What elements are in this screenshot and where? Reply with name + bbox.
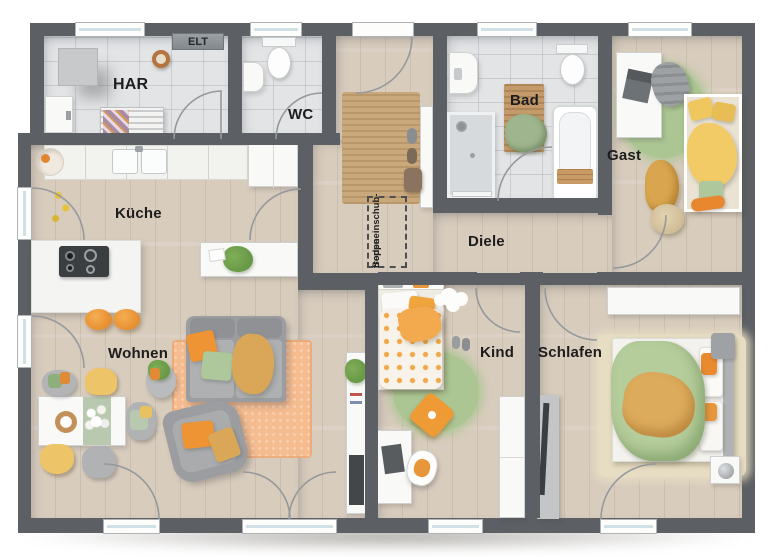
- window-icon: [428, 519, 483, 534]
- laptop-icon: [381, 444, 405, 475]
- attic-hatch: Bodeneinschub- treppe: [367, 196, 407, 268]
- bath-sink-icon: [449, 52, 478, 94]
- wall: [433, 36, 447, 213]
- pouf-icon: [650, 204, 684, 234]
- attic-hatch-label: Bodeneinschub- treppe: [372, 196, 406, 268]
- nightstand-icon: [710, 456, 740, 484]
- room-label-har: HAR: [113, 76, 148, 94]
- bar-stool-icon: [113, 309, 140, 330]
- wall: [228, 133, 340, 145]
- kitchen-island-icon: [31, 240, 141, 313]
- kitchen-sink-icon: [112, 149, 138, 174]
- schlafen-wardrobe-icon: [607, 287, 740, 315]
- bouquet-icon: [81, 403, 115, 437]
- chair-icon: [82, 446, 116, 478]
- cloud-decor-icon: [440, 288, 458, 306]
- toilet-icon: [262, 37, 296, 47]
- kind-bed-icon: [378, 276, 444, 390]
- bath-toilet-icon: [556, 44, 588, 54]
- bath-toilet-bowl-icon: [560, 54, 585, 85]
- elt-label: ELT: [188, 36, 208, 48]
- washing-machine-icon: [45, 96, 73, 133]
- bag-icon: [404, 168, 422, 192]
- plate-icon: [55, 411, 77, 433]
- wall: [597, 272, 742, 285]
- bathtub-icon: [552, 105, 598, 203]
- towel-icon: [505, 114, 547, 152]
- bar-stool-icon: [85, 309, 112, 330]
- wall: [298, 140, 313, 188]
- pillow-icon: [201, 351, 233, 382]
- towel-rail-icon: [452, 191, 492, 197]
- room-label-wc: WC: [288, 106, 313, 123]
- storage-box-icon: [58, 48, 98, 86]
- window-icon: [75, 22, 145, 37]
- fruit-bowl-icon: [36, 148, 64, 176]
- slippers-icon: [452, 336, 460, 349]
- cooktop-icon: [59, 246, 109, 277]
- elt-panel: ELT: [172, 33, 224, 50]
- tv-bench-icon: [346, 352, 366, 514]
- wall: [228, 36, 242, 133]
- tv-board-icon: [537, 395, 559, 519]
- window-icon: [17, 187, 32, 240]
- cable-coil-icon: [152, 50, 170, 68]
- toilet-bowl-icon: [267, 47, 291, 79]
- wall: [322, 36, 336, 140]
- wall: [525, 272, 540, 518]
- fridge-icon: [248, 141, 298, 187]
- tv-icon: [349, 455, 364, 505]
- drying-rack-icon: [100, 107, 164, 135]
- shower-icon: [447, 112, 495, 198]
- room-label-bad: Bad: [510, 92, 539, 109]
- gast-bed-icon: [684, 94, 742, 212]
- chair-icon: [85, 368, 117, 395]
- chair-icon: [126, 402, 156, 440]
- kitchen-sink-icon: [141, 149, 167, 174]
- wall: [378, 272, 477, 285]
- chair-icon: [40, 444, 74, 474]
- houseplant-icon: [223, 246, 253, 272]
- room-label-kueche: Küche: [115, 205, 162, 222]
- dining-table-icon: [38, 396, 126, 446]
- laptop-icon: [622, 69, 654, 104]
- faucet-icon: [135, 146, 143, 152]
- patio-door-icon: [600, 519, 657, 534]
- window-icon: [477, 22, 537, 37]
- room-label-kind: Kind: [480, 344, 514, 361]
- window-icon: [628, 22, 692, 37]
- room-diele-east: [433, 213, 612, 273]
- patio-double-door-icon: [242, 519, 337, 534]
- wall: [552, 198, 598, 213]
- sofa-icon: [186, 316, 286, 402]
- lamp-icon: [718, 463, 734, 479]
- kind-wardrobe-icon: [499, 396, 525, 518]
- sideboard-icon: [200, 242, 298, 277]
- room-label-gast: Gast: [607, 147, 641, 164]
- floor-plan: Bodeneinschub- treppe: [0, 0, 775, 557]
- room-label-schlafen: Schlafen: [538, 344, 602, 361]
- wall: [598, 36, 612, 215]
- wall: [30, 133, 182, 145]
- entrance-door-icon: [352, 22, 414, 37]
- houseplant-icon: [345, 359, 367, 383]
- tv-icon: [539, 403, 550, 495]
- room-label-diele: Diele: [468, 233, 505, 250]
- window-icon: [17, 315, 32, 368]
- window-icon: [250, 22, 302, 37]
- bath-caddy-icon: [557, 169, 593, 184]
- schlafen-bed-icon: [612, 338, 734, 462]
- patio-door-icon: [103, 519, 160, 534]
- chair-icon: [42, 370, 76, 396]
- hand-basin-icon: [243, 62, 264, 92]
- wall: [365, 285, 378, 518]
- console-icon: [420, 106, 433, 208]
- room-label-wohnen: Wohnen: [108, 345, 168, 362]
- wall: [433, 198, 495, 213]
- planter-icon: [146, 364, 176, 398]
- shoes-icon: [407, 128, 417, 144]
